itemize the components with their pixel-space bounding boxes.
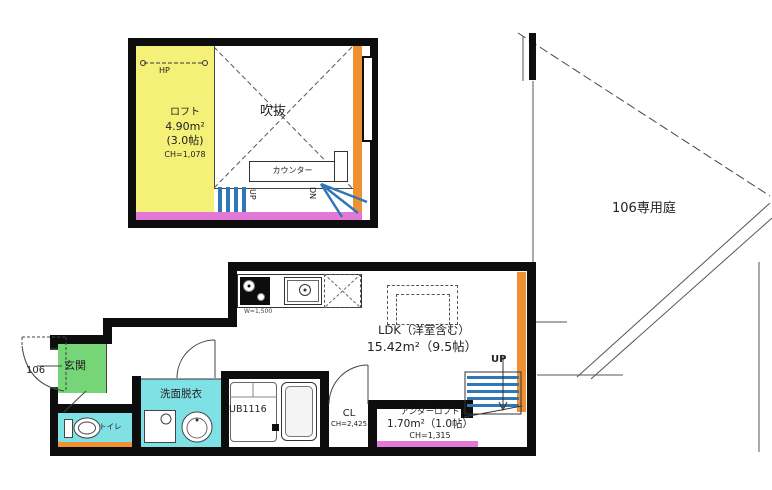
dn-ladder-lines	[321, 184, 367, 217]
counter-label: カウンター	[249, 167, 336, 175]
toilet-label: トイレ	[99, 423, 122, 431]
ldk-label: LDK（洋室含む）	[370, 324, 478, 336]
loft-area: 4.90m²	[145, 121, 225, 133]
toilet-bowl	[74, 418, 100, 438]
refrigerator-x	[324, 274, 361, 308]
floor-plan: カウンター UP DN HP ロフト 4.90m² (3.0帖) CH=1,07…	[0, 0, 772, 490]
stove-burners	[244, 281, 265, 301]
hall-door	[329, 365, 368, 404]
hanger-pipe-symbol	[141, 61, 208, 66]
underloft-ceiling: CH=1,315	[385, 432, 475, 440]
stairs-up-label: UP	[491, 355, 506, 366]
unit-number-label: 106	[26, 366, 45, 377]
closet-label: CL	[330, 409, 368, 420]
loft-name: ロフト	[145, 108, 225, 119]
toilet-door-leaf	[64, 391, 86, 412]
entrance-door	[22, 337, 66, 391]
kitchen-width-label: W=1,500	[244, 309, 272, 315]
void-label: 吹抜	[245, 105, 301, 119]
loft-up-label: UP	[248, 189, 256, 200]
loft-ceiling-height: CH=1,078	[145, 151, 225, 159]
washroom-label: 洗面脱衣	[144, 389, 218, 400]
sink-faucet	[300, 285, 311, 296]
wash-basin	[182, 412, 212, 442]
washroom-door	[177, 340, 215, 378]
underloft-name: アンダーロフト	[385, 408, 475, 417]
loft-tatami: (3.0帖)	[145, 135, 225, 147]
shower-grid-lines	[230, 382, 277, 397]
hanger-pipe-label: HP	[159, 67, 170, 75]
closet-ceiling-label: CH=2,425	[326, 421, 372, 428]
ldk-area-label: 15.42m²（9.5帖）	[366, 340, 478, 353]
loft-dn-label: DN	[308, 187, 316, 199]
garden-label: 106専用庭	[612, 202, 676, 216]
entrance-label: 玄関	[64, 360, 86, 372]
underloft-area: 1.70m²（1.0帖）	[378, 419, 482, 430]
bath-label: UB1116	[229, 405, 267, 415]
washer-faucet	[161, 414, 171, 424]
